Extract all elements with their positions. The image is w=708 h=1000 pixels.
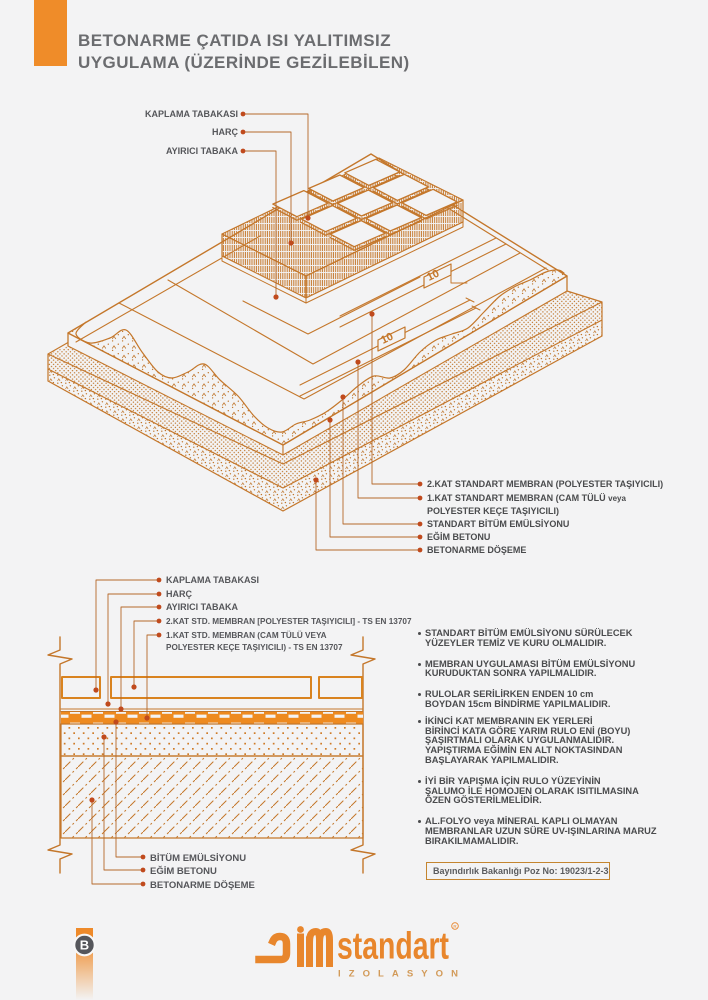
svg-text:HARÇ: HARÇ [212, 127, 238, 137]
svg-text:EĞİM BETONU: EĞİM BETONU [427, 531, 490, 542]
svg-text:EĞİM BETONU: EĞİM BETONU [150, 865, 217, 877]
svg-text:KAPLAMA TABAKASI: KAPLAMA TABAKASI [145, 109, 238, 119]
svg-text:1.KAT STANDART MEMBRAN (CAM TÜ: 1.KAT STANDART MEMBRAN (CAM TÜLÜ veya [427, 493, 627, 503]
svg-text:BETONARME DÖŞEME: BETONARME DÖŞEME [150, 880, 255, 891]
svg-text:BETONARME DÖŞEME: BETONARME DÖŞEME [427, 545, 526, 555]
svg-text:1.KAT STD. MEMBRAN (CAM TÜLÜ V: 1.KAT STD. MEMBRAN (CAM TÜLÜ VEYA [166, 630, 327, 640]
svg-text:2.KAT STANDART MEMBRAN (POLYES: 2.KAT STANDART MEMBRAN (POLYESTER TAŞIYI… [427, 479, 663, 489]
svg-text:2.KAT STD. MEMBRAN [POLYESTER: 2.KAT STD. MEMBRAN [POLYESTER TAŞIYICILI… [166, 617, 412, 626]
svg-text:POLYESTER KEÇE TAŞIYICILI): POLYESTER KEÇE TAŞIYICILI) [427, 506, 559, 516]
svg-text:IZOLASYON: IZOLASYON [338, 969, 458, 980]
svg-text:STANDART BİTÜM EMÜLSİYONU: STANDART BİTÜM EMÜLSİYONU [427, 519, 569, 529]
svg-text:B: B [80, 938, 89, 953]
svg-text:standart: standart [337, 926, 449, 968]
svg-text:AYIRICI TABAKA: AYIRICI TABAKA [166, 602, 239, 612]
svg-text:AYIRICI TABAKA: AYIRICI TABAKA [166, 146, 239, 156]
svg-text:BİTÜM EMÜLSİYONU: BİTÜM EMÜLSİYONU [150, 853, 246, 864]
svg-text:HARÇ: HARÇ [166, 589, 192, 599]
svg-text:POLYESTER KEÇE TAŞIYICILI) - T: POLYESTER KEÇE TAŞIYICILI) - TS EN 13707 [166, 643, 343, 652]
svg-text:KAPLAMA TABAKASI: KAPLAMA TABAKASI [166, 575, 259, 585]
